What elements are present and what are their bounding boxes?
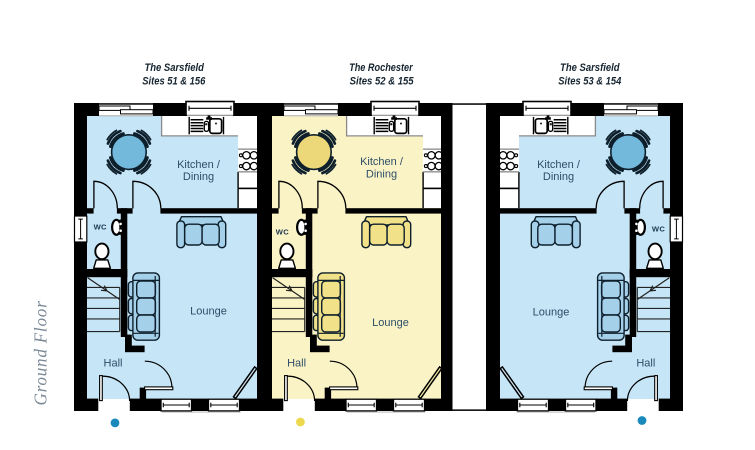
svg-text:Hall: Hall	[636, 357, 655, 369]
svg-text:Hall: Hall	[287, 357, 306, 369]
svg-text:Lounge: Lounge	[190, 306, 227, 318]
svg-text:Lounge: Lounge	[372, 317, 409, 329]
svg-text:Lounge: Lounge	[533, 307, 570, 319]
svg-text:Sites 52 & 155: Sites 52 & 155	[350, 75, 415, 87]
svg-text:Kitchen /: Kitchen /	[537, 159, 581, 171]
svg-text:The Rochester: The Rochester	[349, 62, 413, 74]
svg-text:WC: WC	[94, 222, 107, 231]
svg-text:WC: WC	[652, 224, 665, 233]
svg-text:Sites 51 & 156: Sites 51 & 156	[142, 75, 206, 87]
svg-text:Kitchen /: Kitchen /	[360, 156, 404, 168]
svg-text:Dining: Dining	[183, 171, 214, 183]
svg-text:The Sarsfield: The Sarsfield	[560, 62, 620, 74]
svg-text:Sites 53 & 154: Sites 53 & 154	[558, 75, 621, 87]
svg-text:Dining: Dining	[543, 171, 574, 183]
svg-text:Kitchen /: Kitchen /	[177, 159, 221, 171]
svg-text:Dining: Dining	[366, 168, 397, 180]
svg-text:Ground Floor: Ground Floor	[31, 300, 51, 405]
svg-text:WC: WC	[276, 227, 289, 236]
svg-text:The Sarsfield: The Sarsfield	[144, 62, 204, 74]
svg-text:Hall: Hall	[104, 357, 123, 369]
